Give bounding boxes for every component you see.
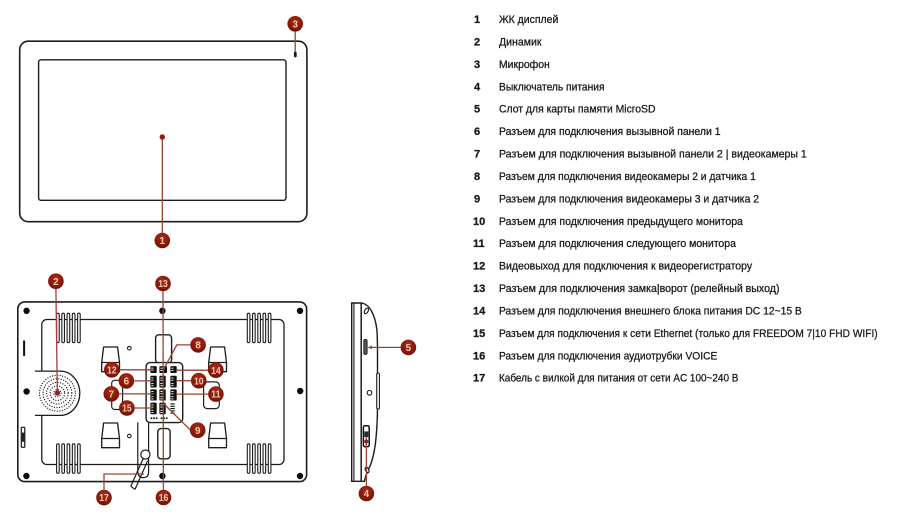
svg-text:6: 6 [124,377,130,388]
svg-text:2: 2 [53,277,59,288]
svg-text:Разъем для подключения вызывно: Разъем для подключения вызывной панели 2… [499,149,807,161]
svg-text:17: 17 [99,493,109,504]
svg-text:5: 5 [406,343,412,354]
svg-text:11: 11 [211,390,221,401]
svg-text:14: 14 [211,366,221,377]
svg-text:Разъем для подключения вызывно: Разъем для подключения вызывной панели 1 [499,126,721,138]
svg-text:Разъем для подключения аудиотр: Разъем для подключения аудиотрубки VOICE [499,350,717,362]
svg-text:9: 9 [195,426,201,437]
svg-text:Видеовыход для подключения к в: Видеовыход для подключения к видеорегист… [499,261,753,273]
svg-text:1: 1 [474,14,480,26]
svg-text:Разъем для подключения следующ: Разъем для подключения следующего монито… [499,238,737,250]
svg-text:4: 4 [474,81,481,93]
svg-text:Разъем для подключения предыду: Разъем для подключения предыдущего монит… [499,216,744,228]
svg-text:Разъем для подключения внешнег: Разъем для подключения внешнего блока пи… [499,306,802,318]
svg-text:8: 8 [474,171,480,183]
svg-text:Разъем для подключения к сети: Разъем для подключения к сети Ethernet (… [499,328,878,340]
svg-text:13: 13 [158,279,168,290]
svg-text:5: 5 [474,104,480,116]
svg-text:Слот для карты памяти MicroSD: Слот для карты памяти MicroSD [499,104,656,116]
svg-text:Разъем для подключения видеока: Разъем для подключения видеокамеры 3 и д… [499,193,759,205]
svg-text:12: 12 [473,261,485,273]
svg-text:3: 3 [292,19,298,30]
svg-text:Выключатель питания: Выключатель питания [499,81,605,93]
svg-text:7: 7 [109,390,115,401]
svg-text:16: 16 [473,350,485,362]
svg-text:1: 1 [160,236,166,247]
svg-text:2: 2 [474,36,480,48]
svg-text:8: 8 [195,341,201,352]
svg-text:15: 15 [122,404,132,415]
svg-text:9: 9 [474,193,480,205]
svg-text:14: 14 [473,306,486,318]
svg-text:10: 10 [473,216,485,228]
svg-text:Разъем для подключения замка|в: Разъем для подключения замка|ворот (реле… [499,283,780,295]
svg-text:13: 13 [473,283,485,295]
svg-text:7: 7 [474,149,480,161]
svg-text:Динамик: Динамик [499,36,542,48]
svg-text:Микрофон: Микрофон [499,59,550,71]
svg-text:12: 12 [107,365,117,376]
svg-text:10: 10 [194,376,204,387]
svg-text:ЖК дисплей: ЖК дисплей [499,14,558,26]
svg-text:16: 16 [159,493,169,504]
svg-text:17: 17 [473,373,485,385]
svg-text:Разъем для подключения видеока: Разъем для подключения видеокамеры 2 и д… [499,171,756,183]
svg-text:6: 6 [474,126,480,138]
svg-text:4: 4 [364,489,370,500]
svg-text:3: 3 [474,59,480,71]
svg-text:15: 15 [473,328,485,340]
svg-text:11: 11 [473,238,485,250]
svg-text:Кабель с вилкой для питания от: Кабель с вилкой для питания от сети AC 1… [499,373,738,385]
